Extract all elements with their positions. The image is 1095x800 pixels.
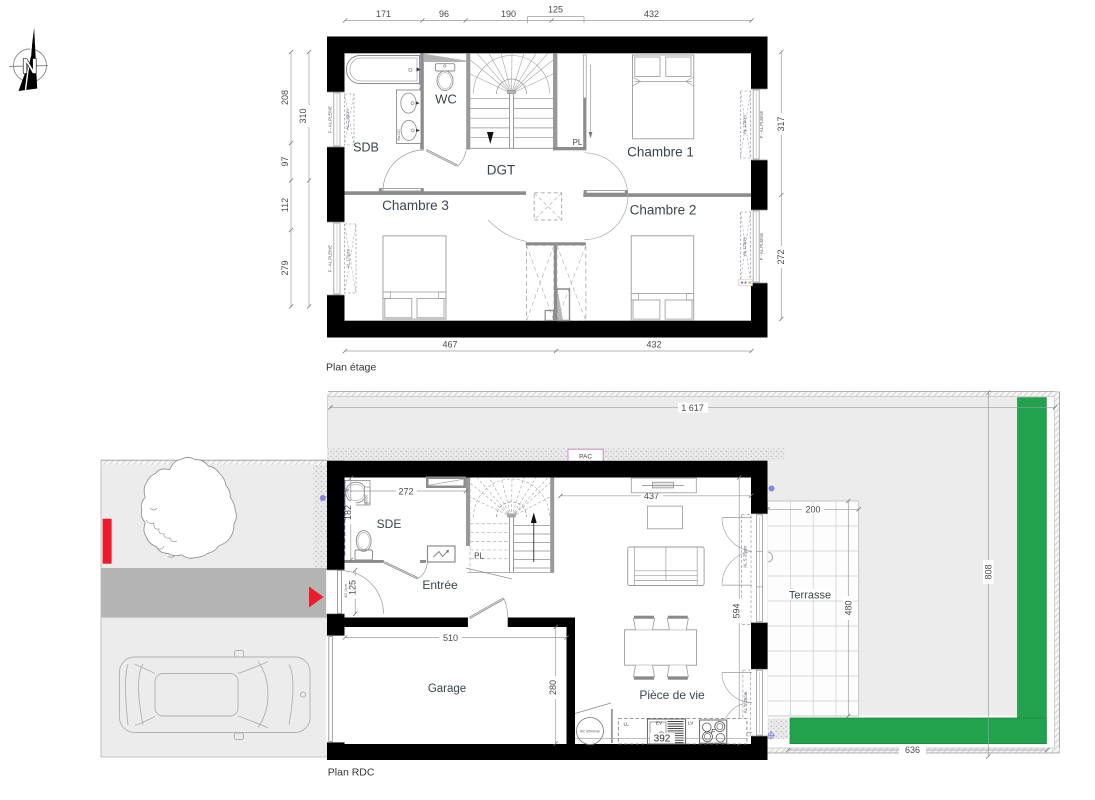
svg-text:AL S 25cm: AL S 25cm [743, 691, 748, 713]
svg-text:PL: PL [573, 138, 583, 147]
svg-text:208: 208 [280, 90, 290, 105]
svg-text:636: 636 [905, 745, 920, 755]
svg-text:AL C 80cm: AL C 80cm [345, 109, 350, 130]
svg-text:F - AL.PLEINE: F - AL.PLEINE [328, 245, 333, 272]
svg-text:Chambre 3: Chambre 3 [382, 198, 449, 213]
svg-text:F: F [711, 729, 716, 736]
svg-text:190: 190 [501, 9, 516, 19]
svg-text:467: 467 [442, 340, 457, 350]
svg-text:Plan étage: Plan étage [326, 362, 376, 374]
svg-text:F - AL.PLEINE: F - AL.PLEINE [759, 111, 764, 138]
svg-text:97: 97 [280, 156, 290, 166]
svg-text:125: 125 [348, 580, 358, 595]
svg-text:PL: PL [474, 552, 484, 561]
svg-text:WC: WC [435, 92, 457, 107]
svg-text:392: 392 [654, 734, 671, 745]
svg-text:Terrasse: Terrasse [789, 590, 831, 602]
svg-text:280: 280 [548, 680, 558, 695]
svg-text:310: 310 [298, 108, 308, 123]
svg-text:272: 272 [776, 249, 786, 264]
svg-text:96: 96 [439, 9, 449, 19]
svg-text:125: 125 [548, 5, 563, 15]
svg-text:480: 480 [844, 600, 854, 615]
svg-text:Plan RDC: Plan RDC [328, 767, 375, 779]
svg-text:AL 170cm: AL 170cm [742, 115, 747, 134]
svg-text:F - AL.PLEINE: F - AL.PLEINE [328, 106, 333, 133]
svg-text:PAC: PAC [579, 453, 592, 460]
svg-text:272: 272 [398, 486, 413, 496]
svg-text:EV: EV [656, 721, 663, 727]
svg-text:Chambre 1: Chambre 1 [627, 145, 694, 160]
svg-text:SDB: SDB [353, 141, 379, 155]
svg-text:Entrée: Entrée [422, 578, 458, 592]
svg-text:AL 170cm: AL 170cm [742, 237, 747, 256]
svg-text:432: 432 [646, 340, 661, 350]
svg-text:279: 279 [280, 260, 290, 275]
svg-text:510: 510 [443, 633, 458, 643]
svg-text:182: 182 [343, 505, 353, 520]
svg-text:171: 171 [376, 9, 391, 19]
svg-text:4G 0cm: 4G 0cm [343, 583, 348, 598]
svg-text:594: 594 [731, 603, 741, 618]
svg-text:Pièce de vie: Pièce de vie [639, 688, 705, 702]
svg-text:317: 317 [776, 116, 786, 131]
svg-text:808: 808 [984, 564, 994, 579]
svg-text:AL 170cm: AL 170cm [346, 249, 351, 268]
svg-text:200: 200 [805, 505, 820, 515]
svg-text:112: 112 [280, 198, 290, 212]
svg-text:LV: LV [688, 721, 694, 727]
svg-text:1 617: 1 617 [681, 403, 704, 413]
svg-text:432: 432 [644, 9, 659, 19]
svg-text:Ba120: Ba120 [397, 130, 401, 141]
svg-text:LL: LL [624, 722, 630, 728]
svg-text:WC Ø500mm: WC Ø500mm [580, 730, 601, 734]
svg-text:DGT: DGT [487, 163, 516, 178]
svg-text:Chambre 2: Chambre 2 [630, 203, 697, 218]
svg-text:SDE: SDE [377, 517, 402, 531]
svg-text:Garage: Garage [428, 683, 466, 695]
svg-text:500x50: 500x50 [364, 495, 368, 506]
svg-text:AL S 25cm: AL S 25cm [743, 546, 748, 568]
svg-text:F - AL.PLEINE: F - AL.PLEINE [759, 233, 764, 260]
